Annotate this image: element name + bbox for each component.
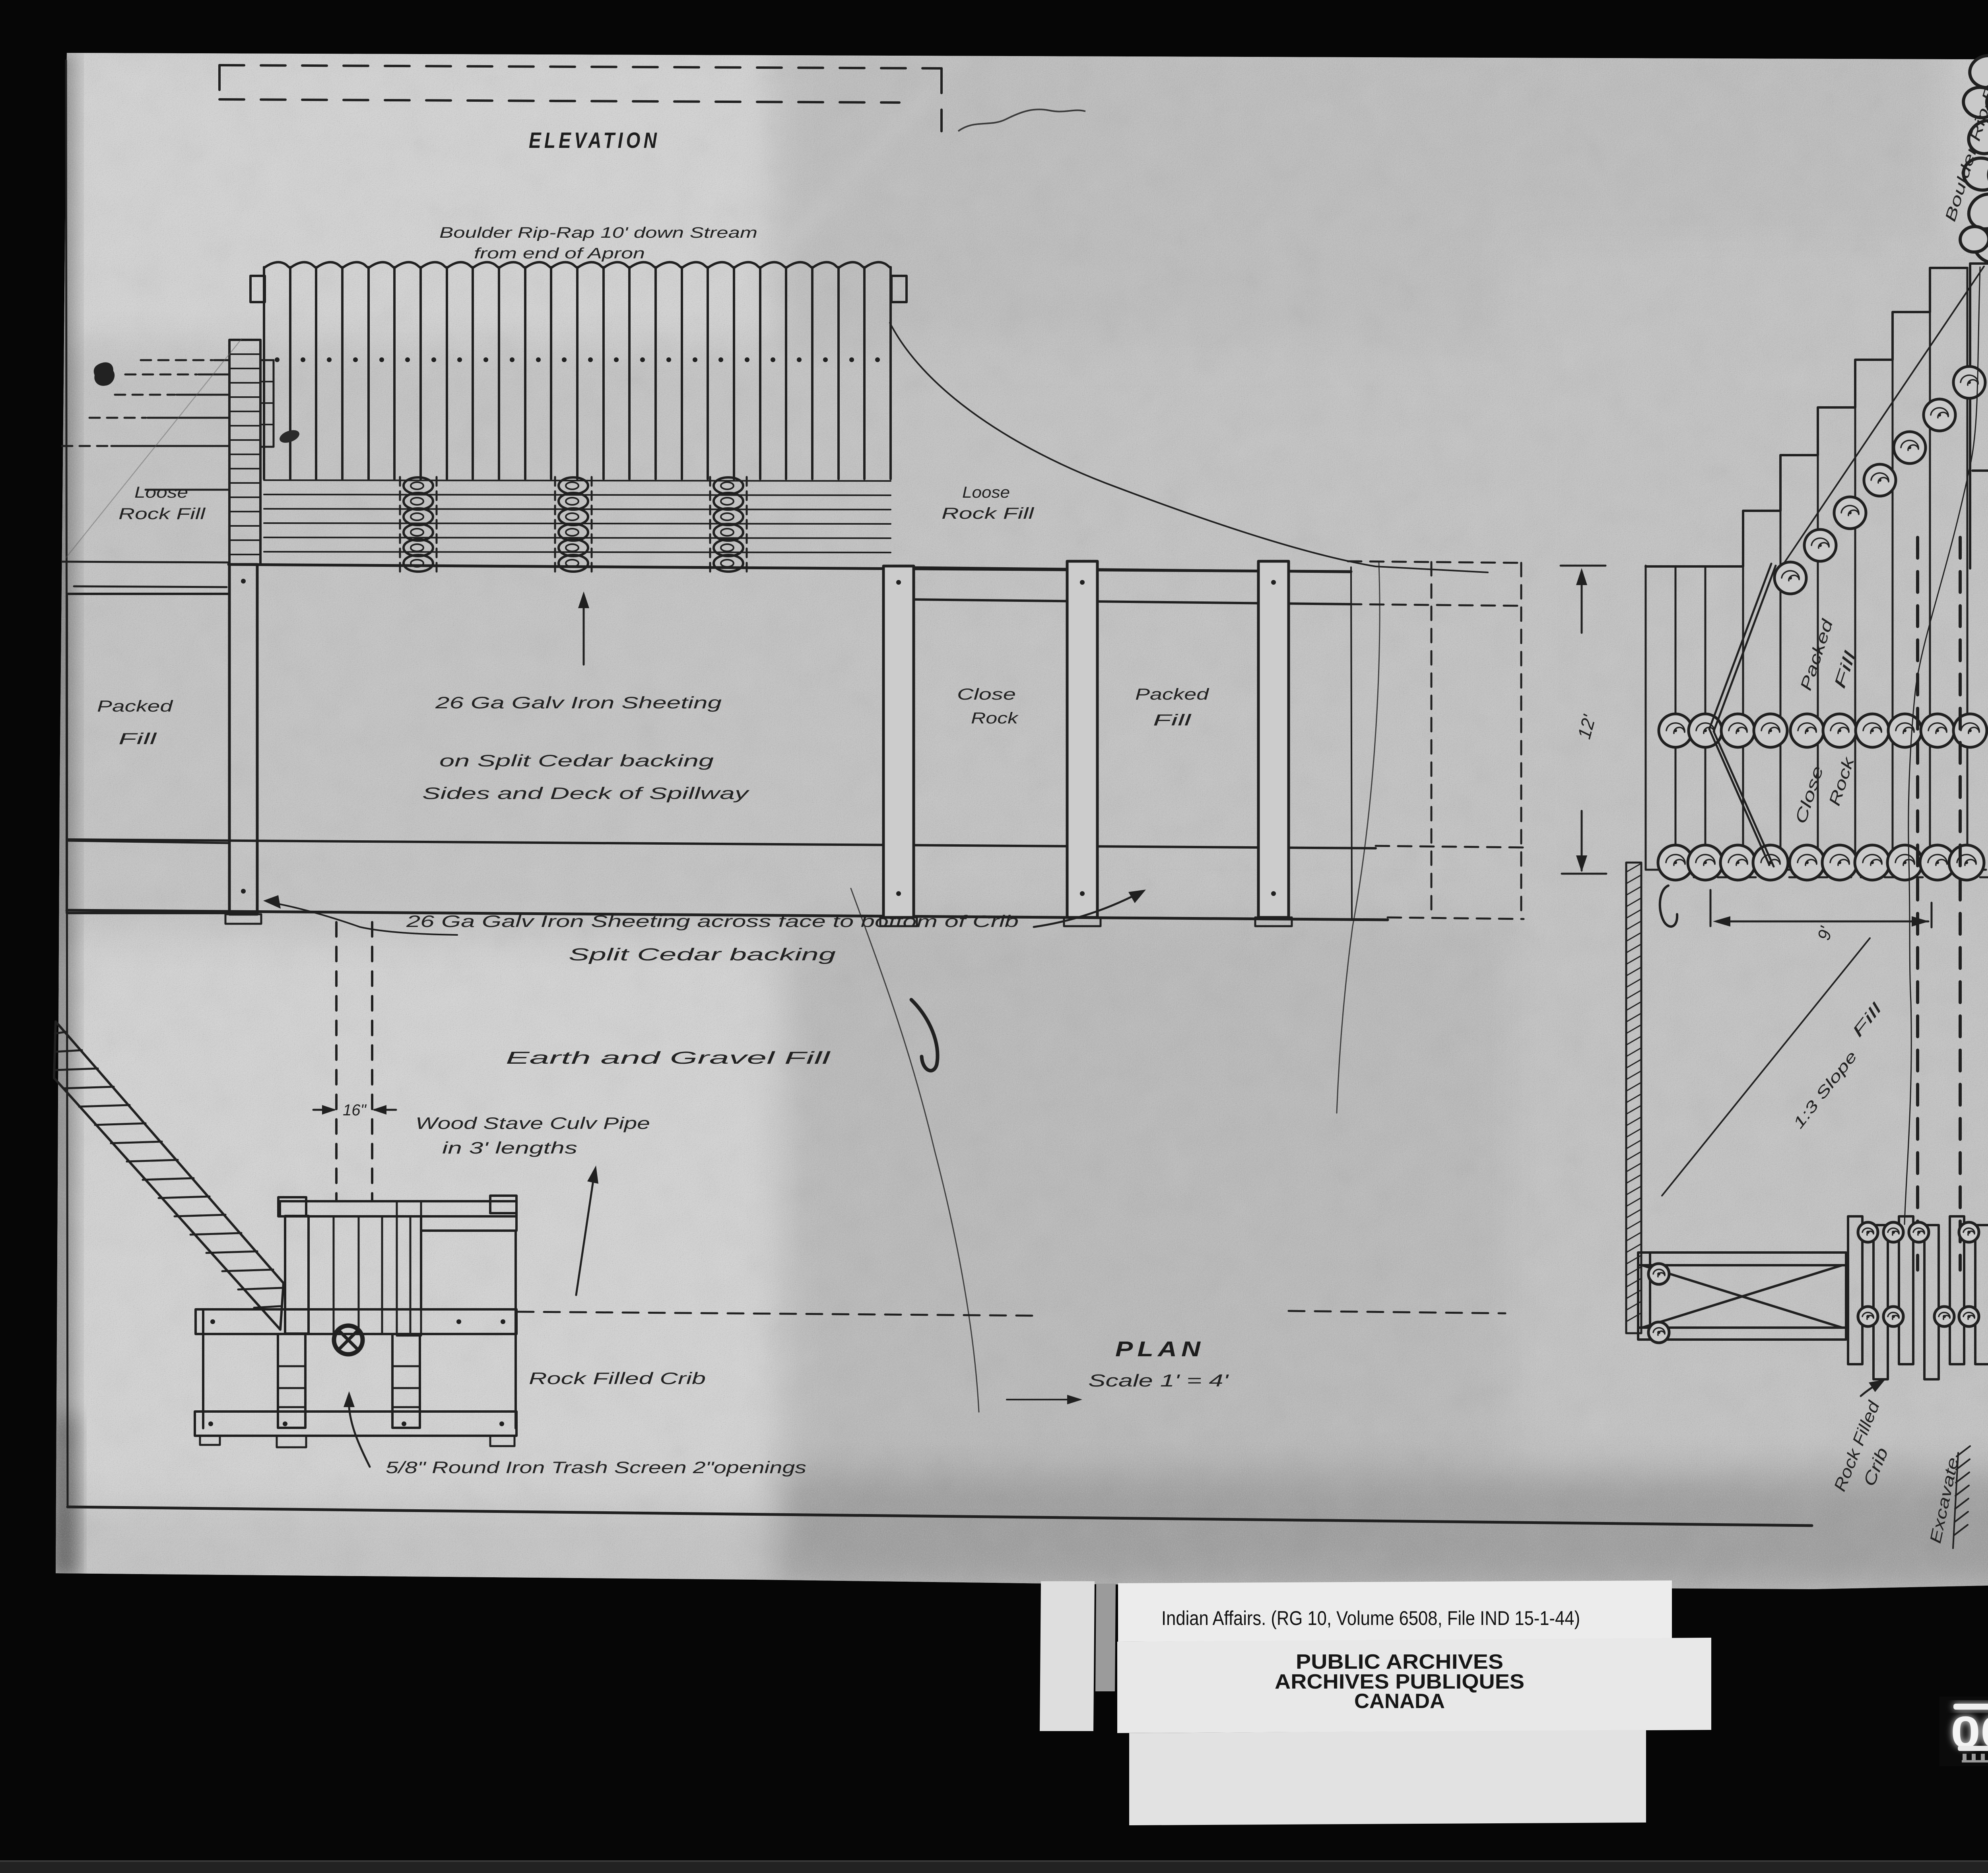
svg-text:Packed: Packed xyxy=(97,698,173,715)
svg-text:26 Ga Galv Iron Sheeting acros: 26 Ga Galv Iron Sheeting across face to … xyxy=(406,912,1019,931)
svg-text:ELEVATION: ELEVATION xyxy=(529,128,660,153)
svg-text:Fill: Fill xyxy=(1153,712,1192,729)
svg-text:Wood Stave Culv Pipe: Wood Stave Culv Pipe xyxy=(415,1114,650,1132)
svg-text:Split Cedar backing: Split Cedar backing xyxy=(569,945,836,964)
svg-text:from end of Apron: from end of Apron xyxy=(474,245,645,262)
svg-text:Rock Fill: Rock Fill xyxy=(118,505,206,523)
svg-text:Boulder Rip-Rap 10' down Strea: Boulder Rip-Rap 10' down Stream xyxy=(439,225,757,241)
svg-text:Scale 1' = 4': Scale 1' = 4' xyxy=(1088,1371,1229,1390)
svg-text:Indian Affairs. (RG 10, Volume: Indian Affairs. (RG 10, Volume 6508, Fil… xyxy=(1161,1607,1580,1629)
svg-text:5/8" Round Iron Trash Screen 2: 5/8" Round Iron Trash Screen 2"openings xyxy=(386,1458,806,1477)
svg-text:Rock Filled Crib: Rock Filled Crib xyxy=(529,1369,706,1388)
svg-text:Rock Fill: Rock Fill xyxy=(942,505,1035,522)
svg-text:PLAN: PLAN xyxy=(1115,1337,1205,1361)
svg-text:Close: Close xyxy=(957,686,1016,703)
svg-text:Loose: Loose xyxy=(134,484,188,501)
svg-text:Packed: Packed xyxy=(1135,686,1209,703)
svg-text:Rock: Rock xyxy=(971,710,1019,727)
svg-text:16": 16" xyxy=(343,1101,367,1119)
svg-text:in 3' lengths: in 3' lengths xyxy=(442,1138,577,1157)
svg-text:Fill: Fill xyxy=(118,730,157,748)
svg-text:26 Ga Galv Iron Sheeting: 26 Ga Galv Iron Sheeting xyxy=(435,693,722,712)
svg-text:Earth and Gravel Fill: Earth and Gravel Fill xyxy=(506,1048,831,1068)
svg-text:Sides and Deck of Spillway: Sides and Deck of Spillway xyxy=(422,784,750,803)
svg-text:CANADA: CANADA xyxy=(1354,1690,1445,1713)
svg-text:on Split Cedar backing: on Split Cedar backing xyxy=(439,751,714,770)
svg-text:Loose: Loose xyxy=(962,484,1010,501)
